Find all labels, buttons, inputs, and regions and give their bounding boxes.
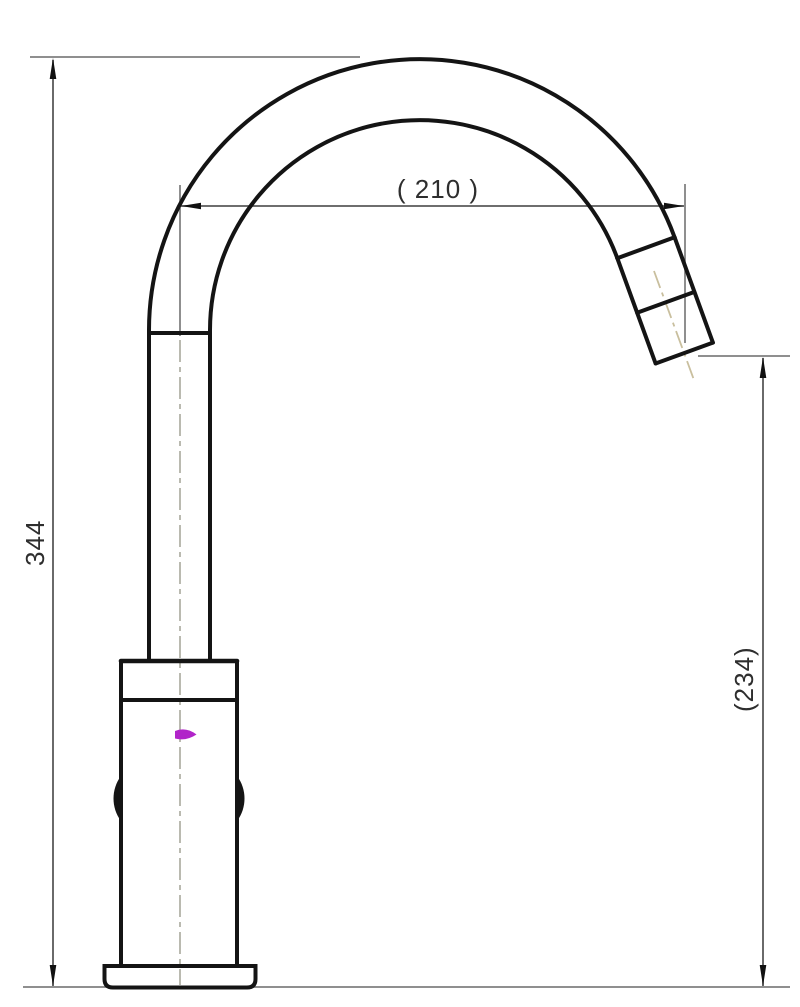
centerline-layer xyxy=(180,271,694,985)
spout-inner-curve xyxy=(210,120,617,330)
arrowhead-right-icon xyxy=(664,203,684,210)
faucet-dimension-drawing: 344 ( 210 ) (234) xyxy=(0,0,800,1007)
arrowhead-up-icon xyxy=(50,58,57,79)
dimension-text-outlet-height: (234) xyxy=(729,646,759,712)
spout-tip-outer-edge xyxy=(675,237,713,342)
dimension-text-height: 344 xyxy=(20,520,50,566)
arrowhead-down-icon xyxy=(50,965,57,986)
dimension-text-reach: ( 210 ) xyxy=(397,174,479,204)
dimension-layer: 344 ( 210 ) (234) xyxy=(20,57,790,987)
spout-end-cap xyxy=(656,343,713,364)
arrowhead-up-icon xyxy=(760,357,767,378)
arrowhead-down-icon xyxy=(760,965,767,986)
magenta-detail-mark xyxy=(175,729,197,739)
arrowhead-left-icon xyxy=(181,203,201,210)
technical-drawing-canvas: 344 ( 210 ) (234) xyxy=(0,0,800,1007)
spout-band-joint-1 xyxy=(617,237,674,258)
left-lug-bump xyxy=(114,776,122,821)
right-lug-bump xyxy=(237,776,245,821)
